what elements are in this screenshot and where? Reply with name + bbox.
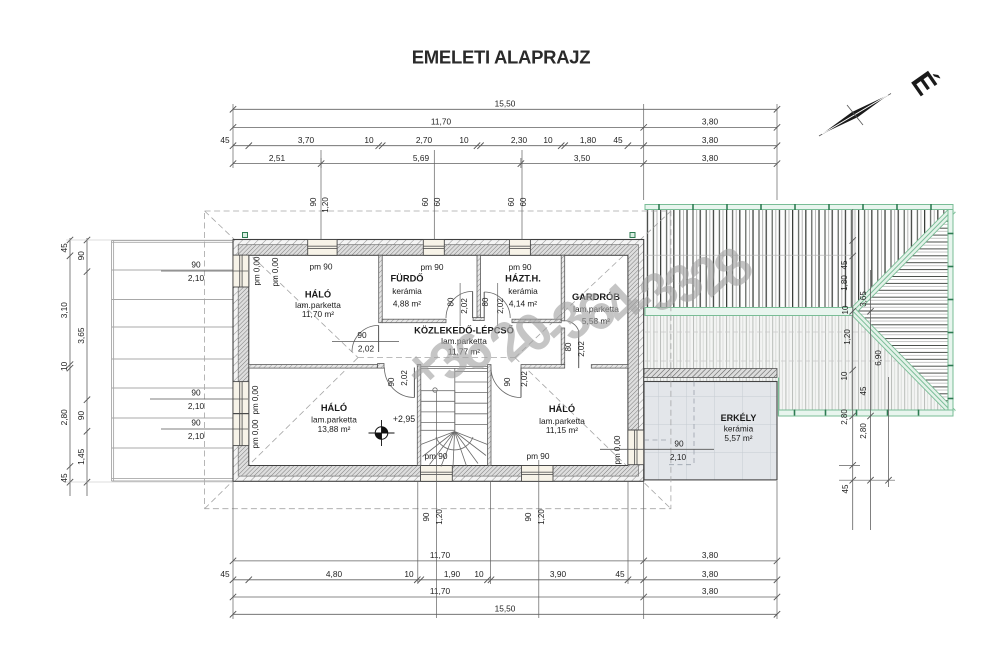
svg-text:15,50: 15,50 [495,604,516,614]
svg-text:45: 45 [841,484,850,493]
svg-text:2,02: 2,02 [520,371,529,387]
svg-text:kerámia: kerámia [508,286,538,296]
svg-text:HÁLÓ: HÁLÓ [549,403,575,414]
svg-text:2,80: 2,80 [859,423,868,439]
svg-text:3,80: 3,80 [702,117,719,127]
svg-text:1,80: 1,80 [840,275,849,291]
svg-text:60: 60 [519,197,528,206]
svg-text:2,80: 2,80 [59,409,69,426]
svg-text:90: 90 [76,411,86,421]
svg-text:EMELETI ALAPRAJZ: EMELETI ALAPRAJZ [412,47,591,68]
svg-text:10: 10 [364,135,374,145]
svg-text:90: 90 [191,418,201,428]
svg-text:80: 80 [447,297,456,306]
svg-text:11,70 m²: 11,70 m² [302,309,334,319]
svg-text:45: 45 [59,473,69,483]
svg-text:pm 90: pm 90 [508,262,531,272]
svg-text:45: 45 [840,260,849,269]
svg-text:pm 0,00: pm 0,00 [251,419,260,448]
svg-text:90: 90 [191,388,201,398]
svg-text:11,15 m²: 11,15 m² [546,425,578,435]
svg-text:60: 60 [421,197,430,206]
svg-text:45: 45 [859,386,868,395]
svg-text:3,80: 3,80 [702,586,719,596]
svg-text:10: 10 [543,135,553,145]
svg-text:45: 45 [220,135,230,145]
svg-text:3,80: 3,80 [702,153,719,163]
svg-text:pm 90: pm 90 [526,451,549,461]
svg-text:ERKÉLY: ERKÉLY [721,413,757,423]
svg-text:pm 90: pm 90 [309,262,332,272]
svg-text:90: 90 [503,377,512,386]
svg-text:45: 45 [220,569,230,579]
svg-text:3,10: 3,10 [59,302,69,319]
svg-text:3,80: 3,80 [702,550,719,560]
svg-text:10: 10 [404,569,414,579]
svg-text:3,50: 3,50 [574,153,591,163]
svg-text:1,80: 1,80 [580,135,597,145]
svg-text:45: 45 [615,569,625,579]
svg-text:2,51: 2,51 [269,153,286,163]
svg-text:2,10: 2,10 [188,401,205,411]
svg-text:pm 90: pm 90 [420,262,443,272]
svg-text:10: 10 [459,135,469,145]
svg-text:2,02: 2,02 [358,344,375,354]
svg-text:90: 90 [357,330,367,340]
svg-text:15,50: 15,50 [495,99,516,109]
svg-text:45: 45 [59,243,69,253]
svg-text:90: 90 [191,260,201,270]
svg-text:3,80: 3,80 [702,135,719,145]
svg-text:45: 45 [613,135,623,145]
svg-text:HÁLÓ: HÁLÓ [305,289,331,300]
svg-text:11,70: 11,70 [431,117,452,127]
svg-text:5,69: 5,69 [413,153,430,163]
svg-text:3,70: 3,70 [298,135,315,145]
svg-text:10: 10 [841,305,850,314]
svg-text:2,80: 2,80 [840,409,849,425]
svg-text:HÁLÓ: HÁLÓ [321,402,347,413]
svg-text:FÜRDŐ: FÜRDŐ [390,272,423,283]
svg-text:1,45: 1,45 [76,448,86,465]
svg-text:pm 0,00: pm 0,00 [271,257,280,286]
svg-text:kerámia: kerámia [392,286,422,296]
svg-text:4,80: 4,80 [326,569,343,579]
svg-text:2,10: 2,10 [188,431,205,441]
svg-text:pm 0,00: pm 0,00 [253,256,262,285]
svg-text:3,65: 3,65 [859,291,868,307]
svg-text:90: 90 [674,438,684,448]
svg-text:90: 90 [309,197,318,206]
svg-text:1,20: 1,20 [321,197,330,213]
svg-text:60: 60 [507,197,516,206]
svg-text:pm 0,00: pm 0,00 [613,435,622,464]
svg-text:2,70: 2,70 [416,135,433,145]
svg-text:lam.parketta: lam.parketta [311,414,357,424]
svg-text:kerámia: kerámia [724,423,754,433]
svg-text:11,70: 11,70 [430,586,451,596]
svg-text:2,10: 2,10 [670,452,687,462]
svg-text:2,30: 2,30 [511,135,528,145]
svg-text:1,20: 1,20 [537,509,546,525]
svg-text:10: 10 [474,569,484,579]
svg-text:10: 10 [840,371,849,380]
svg-text:90: 90 [524,512,533,521]
svg-text:HÁZT.H.: HÁZT.H. [505,273,541,283]
svg-text:90: 90 [76,251,86,261]
svg-text:3,80: 3,80 [702,569,719,579]
svg-text:4,88 m²: 4,88 m² [393,298,421,308]
svg-text:3,65: 3,65 [76,327,86,344]
svg-text:60: 60 [433,197,442,206]
svg-text:1,20: 1,20 [843,329,852,345]
svg-text:1,20: 1,20 [435,509,444,525]
svg-text:+2,95: +2,95 [393,414,415,424]
svg-text:1,90: 1,90 [444,569,461,579]
svg-text:90: 90 [422,512,431,521]
svg-text:13,88 m²: 13,88 m² [318,424,351,434]
svg-text:pm 0,00: pm 0,00 [251,385,260,414]
svg-text:10: 10 [59,361,69,371]
svg-text:90: 90 [387,377,396,386]
svg-text:80: 80 [481,297,490,306]
svg-text:6,90: 6,90 [874,350,883,366]
svg-text:2,02: 2,02 [460,298,469,314]
svg-text:2,10: 2,10 [188,273,205,283]
svg-text:3,90: 3,90 [550,569,567,579]
svg-text:5,57 m²: 5,57 m² [724,433,752,443]
svg-text:11,70: 11,70 [430,550,451,560]
